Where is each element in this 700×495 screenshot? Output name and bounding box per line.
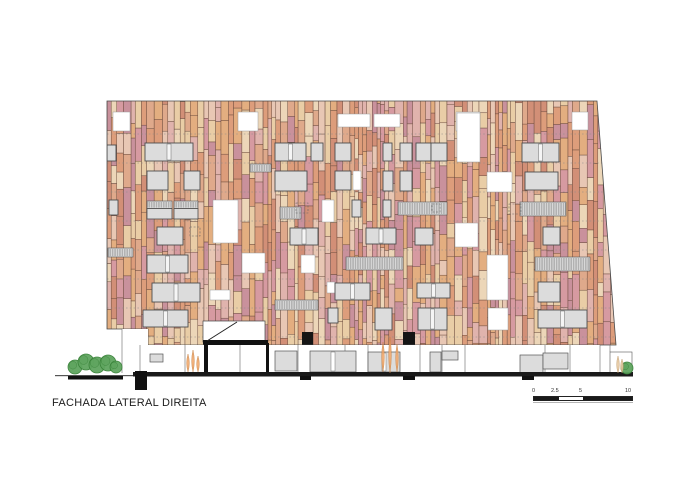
scale-label-25: 2.5 [551, 388, 559, 394]
scale-label-0: 0 [532, 388, 535, 394]
scale-bar-graphic [533, 396, 633, 401]
scale-label-10: 10 [625, 388, 631, 394]
scale-bar-baseline [533, 402, 633, 403]
scale-label-5: 5 [579, 388, 582, 394]
scale-segment-dark [534, 397, 559, 400]
scale-bar: 0 2.5 5 10 [532, 388, 638, 408]
drawing-title: FACHADA LATERAL DIREITA [52, 397, 207, 409]
elevation-sheet: FACHADA LATERAL DIREITA 0 2.5 5 10 [0, 0, 700, 495]
scale-segment-dark [583, 397, 632, 400]
scale-segment-light [559, 397, 584, 400]
elevation-drawing [0, 0, 700, 495]
